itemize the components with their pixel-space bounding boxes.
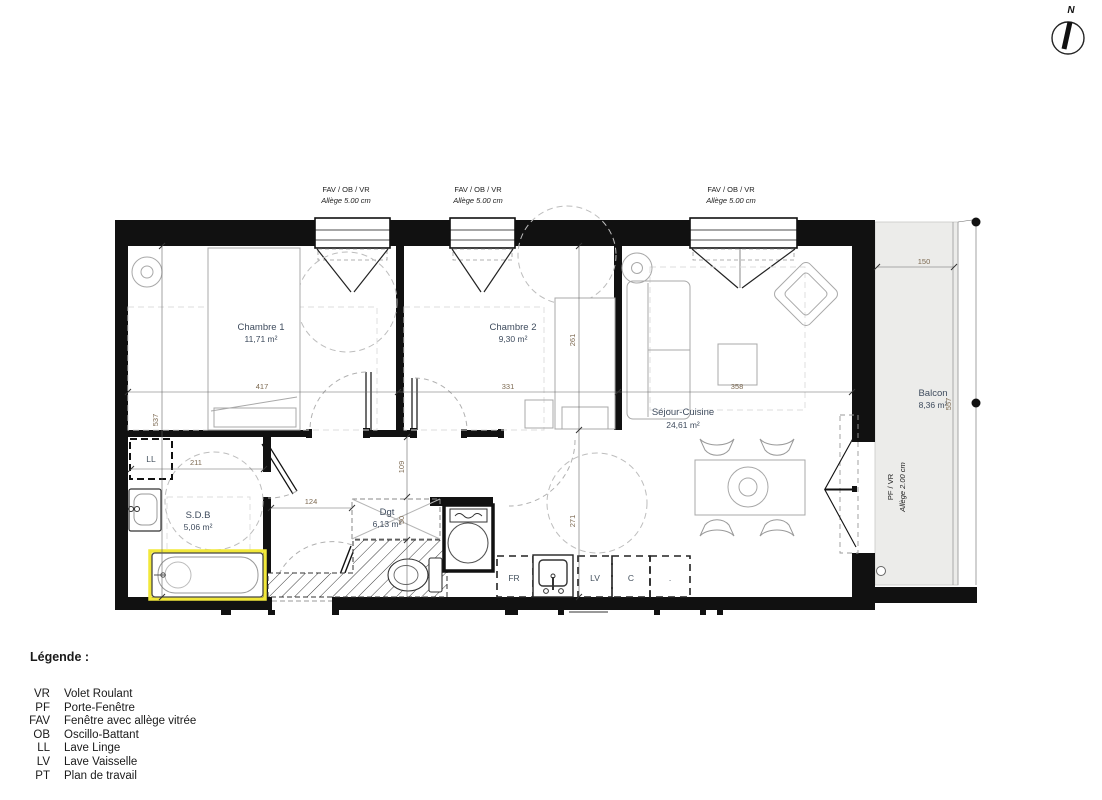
north-compass: N xyxy=(1052,5,1084,54)
legend-item-ob: OB Oscillo-Battant xyxy=(0,729,340,743)
floor-plan: FAV / OB / VR Allège 5.00 cm FAV / OB / … xyxy=(0,0,1102,650)
room-label-chambre2: Chambre 2 xyxy=(490,322,537,333)
window1-allege-label: Allège 5.00 cm xyxy=(320,196,371,205)
wc-toilet xyxy=(388,558,442,592)
legend-label: Fenêtre avec allège vitrée xyxy=(50,715,196,729)
legend-label: Porte-Fenêtre xyxy=(50,702,135,716)
door-chambre1 xyxy=(310,372,371,430)
legend-abbr: OB xyxy=(0,729,50,743)
fixture-label-fr: FR xyxy=(508,573,519,583)
legend-item-ll: LL Lave Linge xyxy=(0,742,340,756)
legend-abbr: PF xyxy=(0,702,50,716)
fixture-label-spare: . xyxy=(669,573,671,583)
legend-label: Volet Roulant xyxy=(50,688,132,702)
window3-type-label: FAV / OB / VR xyxy=(707,185,755,194)
dim-261: 261 xyxy=(568,334,577,347)
legend-label: Lave Vaisselle xyxy=(50,756,137,770)
dim-417: 417 xyxy=(256,382,269,391)
legend-label: Plan de travail xyxy=(50,770,137,784)
door-chambre2 xyxy=(412,378,467,430)
sejour-furniture xyxy=(622,253,840,536)
legend-rows: VR Volet Roulant PF Porte-Fenêtre FAV Fe… xyxy=(0,688,340,783)
room-area-sdb: 5,06 m² xyxy=(184,522,213,532)
dim-150: 150 xyxy=(918,257,931,266)
room-area-sejour: 24,61 m² xyxy=(666,420,700,430)
legend-item-fav: FAV Fenêtre avec allège vitrée xyxy=(0,715,340,729)
room-label-balcon: Balcon xyxy=(918,388,947,399)
coffee-table xyxy=(718,344,757,385)
legend-label: Oscillo-Battant xyxy=(50,729,139,743)
threshold-ticks xyxy=(221,610,723,615)
window-chambre1 xyxy=(315,218,390,292)
legend: Légende : VR Volet Roulant PF Porte-Fenê… xyxy=(0,650,340,783)
room-label-chambre1: Chambre 1 xyxy=(238,322,285,333)
washbasin xyxy=(129,489,162,531)
legend-item-lv: LV Lave Vaisselle xyxy=(0,756,340,770)
dim-331: 331 xyxy=(502,382,515,391)
legend-abbr: FAV xyxy=(0,715,50,729)
window-chambre2 xyxy=(450,218,515,292)
legend-item-vr: VR Volet Roulant xyxy=(0,688,340,702)
fixture-label-ll: LL xyxy=(146,454,156,464)
window2-allege-label: Allège 5.00 cm xyxy=(452,196,503,205)
vanity-unit xyxy=(444,505,493,571)
survey-point-mid xyxy=(972,399,981,408)
chambre2-furniture xyxy=(525,298,615,429)
room-area-chambre2: 9,30 m² xyxy=(499,334,528,344)
dining-table xyxy=(695,460,805,515)
fixture-label-lv: LV xyxy=(590,573,600,583)
dim-50: 50 xyxy=(397,516,406,524)
window-sejour xyxy=(690,218,797,288)
legend-item-pt: PT Plan de travail xyxy=(0,770,340,784)
window3-allege-label: Allège 5.00 cm xyxy=(705,196,756,205)
survey-point-top xyxy=(972,218,981,227)
legend-abbr: LL xyxy=(0,742,50,756)
floor-lamp-icon xyxy=(622,253,652,283)
balcony-door-allege-label: Allège 2.00 cm xyxy=(898,462,907,513)
dim-124: 124 xyxy=(305,497,318,506)
dim-211: 211 xyxy=(190,458,202,467)
bathtub xyxy=(150,551,265,599)
north-label: N xyxy=(1067,5,1075,16)
armchair xyxy=(772,260,840,328)
room-label-dgt: Dgt xyxy=(380,507,395,518)
fixture-label-c: C xyxy=(628,573,634,583)
legend-title: Légende : xyxy=(30,650,340,664)
room-area-chambre1: 11,71 m² xyxy=(245,334,278,344)
kitchen-sink xyxy=(533,555,573,597)
ceiling-light-icon xyxy=(132,257,162,287)
dim-358: 358 xyxy=(731,382,744,391)
room-label-sejour: Séjour-Cuisine xyxy=(652,407,714,418)
sofa xyxy=(627,281,690,419)
compass-needle xyxy=(1064,22,1070,49)
dim-537: 537 xyxy=(151,414,160,427)
dim-557: 557 xyxy=(944,398,953,411)
legend-abbr: VR xyxy=(0,688,50,702)
dim-109: 109 xyxy=(397,461,406,474)
window2-type-label: FAV / OB / VR xyxy=(454,185,502,194)
legend-item-pf: PF Porte-Fenêtre xyxy=(0,702,340,716)
legend-abbr: PT xyxy=(0,770,50,784)
balcony-drain-icon xyxy=(877,567,886,576)
door-sejour xyxy=(509,440,575,506)
room-label-sdb: S.D.B xyxy=(186,510,211,521)
dim-271: 271 xyxy=(568,515,577,528)
window1-type-label: FAV / OB / VR xyxy=(322,185,370,194)
balcony-door-type-label: PF / VR xyxy=(886,473,895,500)
legend-label: Lave Linge xyxy=(50,742,120,756)
legend-abbr: LV xyxy=(0,756,50,770)
